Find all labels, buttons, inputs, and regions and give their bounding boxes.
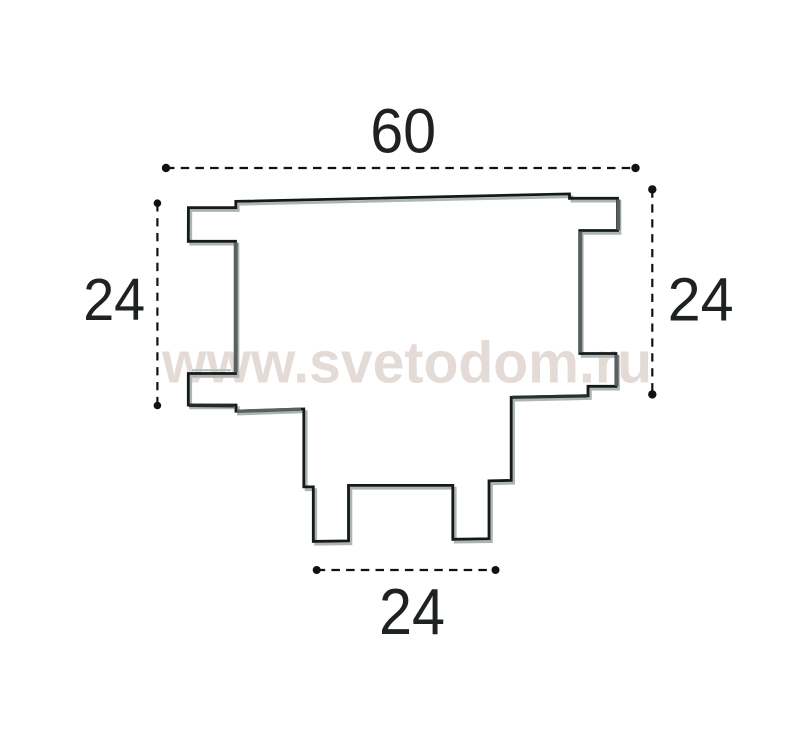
svg-text:24: 24 xyxy=(668,266,734,334)
svg-text:60: 60 xyxy=(370,97,436,167)
svg-text:24: 24 xyxy=(83,266,145,333)
svg-text:24: 24 xyxy=(379,576,445,648)
